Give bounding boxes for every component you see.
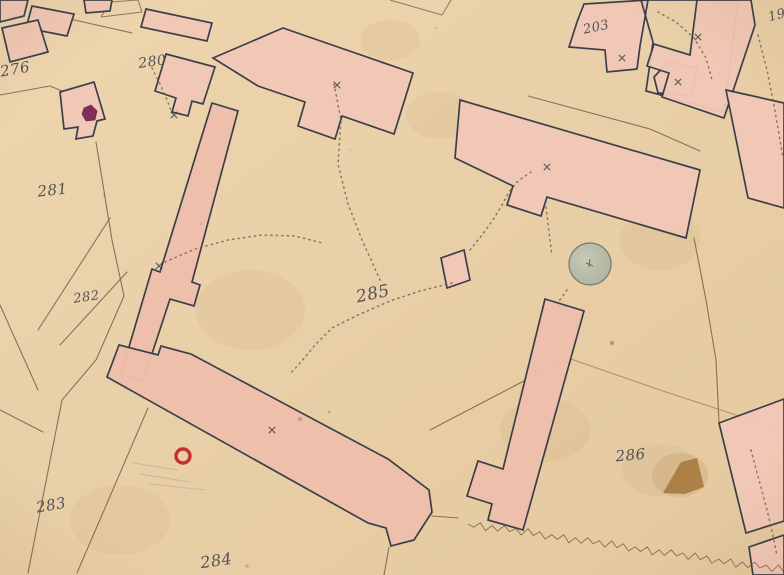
map-canvas: 27628028128228328428528620319 [0,0,784,575]
cadastral-map-sheet: 27628028128228328428528620319 [0,0,784,575]
paper-vignette [0,0,784,575]
